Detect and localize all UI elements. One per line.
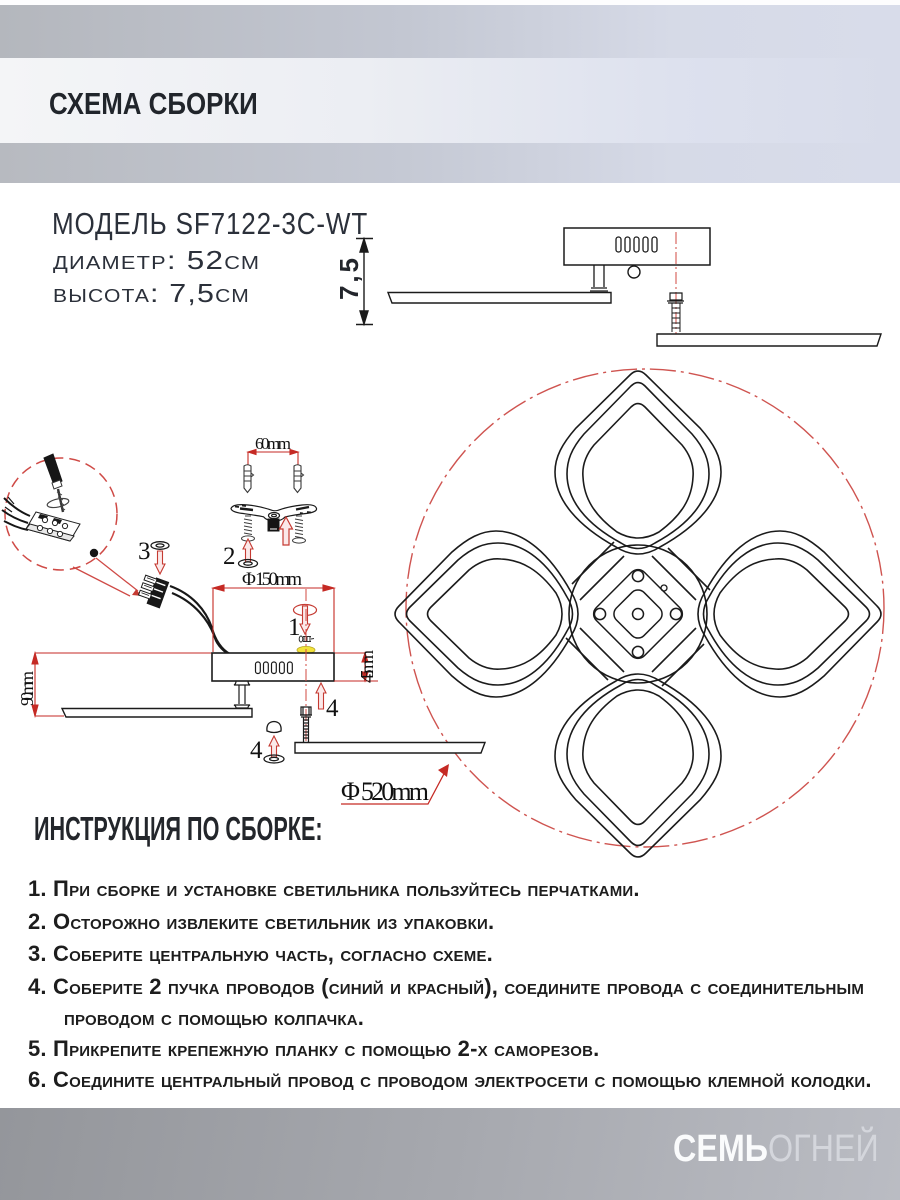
svg-text:90mm: 90mm [17, 671, 37, 706]
svg-text:7,5: 7,5 [334, 258, 364, 300]
svg-text:45mm: 45mm [357, 650, 377, 683]
svg-text:Φ 150mm: Φ 150mm [242, 569, 302, 590]
svg-text:3: 3 [138, 538, 151, 565]
svg-text:1: 1 [288, 614, 301, 641]
svg-text:4: 4 [250, 737, 263, 764]
svg-text:4: 4 [326, 695, 339, 722]
svg-text:60mm: 60mm [255, 434, 291, 453]
svg-text:Φ 520mm: Φ 520mm [341, 777, 429, 806]
svg-text:2: 2 [223, 543, 236, 570]
